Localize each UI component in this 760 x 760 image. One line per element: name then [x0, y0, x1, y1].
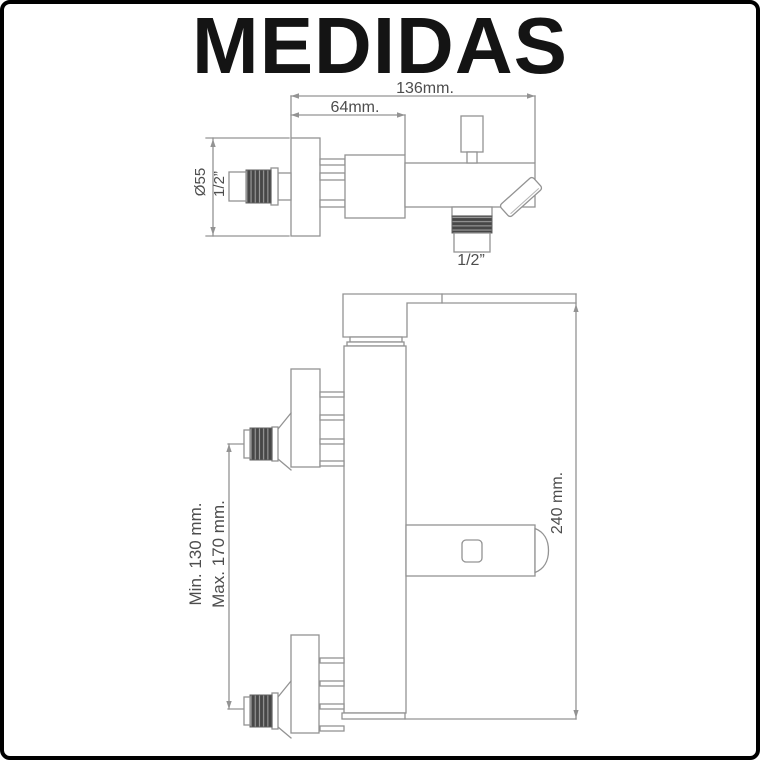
mixer-body-side-view	[344, 346, 406, 713]
cartridge-ring-upper	[350, 337, 402, 342]
inlet-collar	[271, 168, 278, 205]
inlet-cap	[229, 172, 246, 201]
spout-side-view	[406, 525, 549, 576]
dim-label-240mm: 240 mm.	[549, 443, 571, 563]
dim-label-min-130: Min. 130 mm.	[186, 474, 208, 634]
body-bottom-cap	[342, 713, 405, 719]
handle-side-view	[343, 294, 442, 337]
cartridge-housing	[345, 155, 405, 218]
dim-label-diameter-55: Ø55	[192, 152, 212, 212]
upper-wall-connection	[244, 369, 344, 470]
inlet-stub	[278, 173, 291, 200]
outlet-nut	[454, 233, 490, 252]
shower-outlet	[452, 207, 492, 252]
handle-top-view	[461, 116, 483, 152]
upper-wall-plate	[291, 369, 320, 467]
upper-connector-collar	[272, 427, 278, 461]
spout-rounded-end	[535, 529, 549, 573]
dim-label-max-170: Max. 170 mm.	[209, 474, 231, 634]
diverter-knob	[462, 540, 482, 562]
dim-label-inlet-thread: 1/2”	[211, 154, 231, 214]
side-view-drawing	[226, 294, 578, 738]
dim-label-136mm: 136mm.	[365, 80, 485, 98]
lower-connector-collar	[272, 693, 278, 729]
lower-connector-cap	[244, 697, 250, 725]
dim-label-64mm: 64mm.	[295, 99, 415, 117]
wall-plate-top-view	[291, 138, 320, 236]
lower-wall-connection	[244, 635, 344, 738]
outlet-thread-top-view	[452, 216, 492, 233]
handle-stem	[467, 152, 477, 163]
inlet-thread-top-view	[246, 170, 271, 203]
lower-connector-thread	[250, 695, 272, 727]
dim-label-outlet-thread: 1/2”	[431, 252, 511, 270]
supply-pipes-top-view	[320, 159, 345, 207]
lower-wall-plate	[291, 635, 319, 733]
diagram-canvas: MEDIDAS	[0, 0, 760, 760]
upper-connector-thread	[250, 428, 272, 460]
upper-connector-cap	[244, 430, 250, 458]
